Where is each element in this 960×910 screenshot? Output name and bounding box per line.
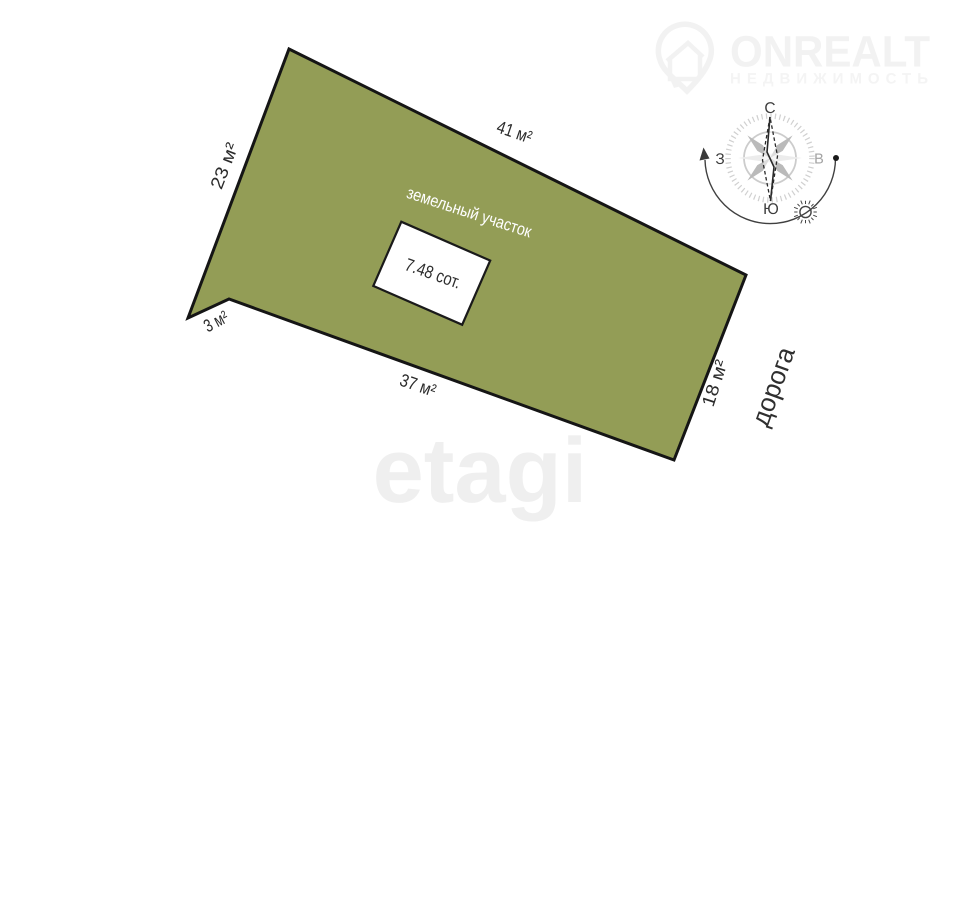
svg-text:Ю: Ю xyxy=(763,201,779,218)
svg-text:З: З xyxy=(715,151,724,168)
svg-text:В: В xyxy=(814,152,824,168)
svg-text:С: С xyxy=(764,100,775,117)
svg-text:etagi: etagi xyxy=(373,420,588,522)
svg-text:ONREALT: ONREALT xyxy=(730,28,930,77)
